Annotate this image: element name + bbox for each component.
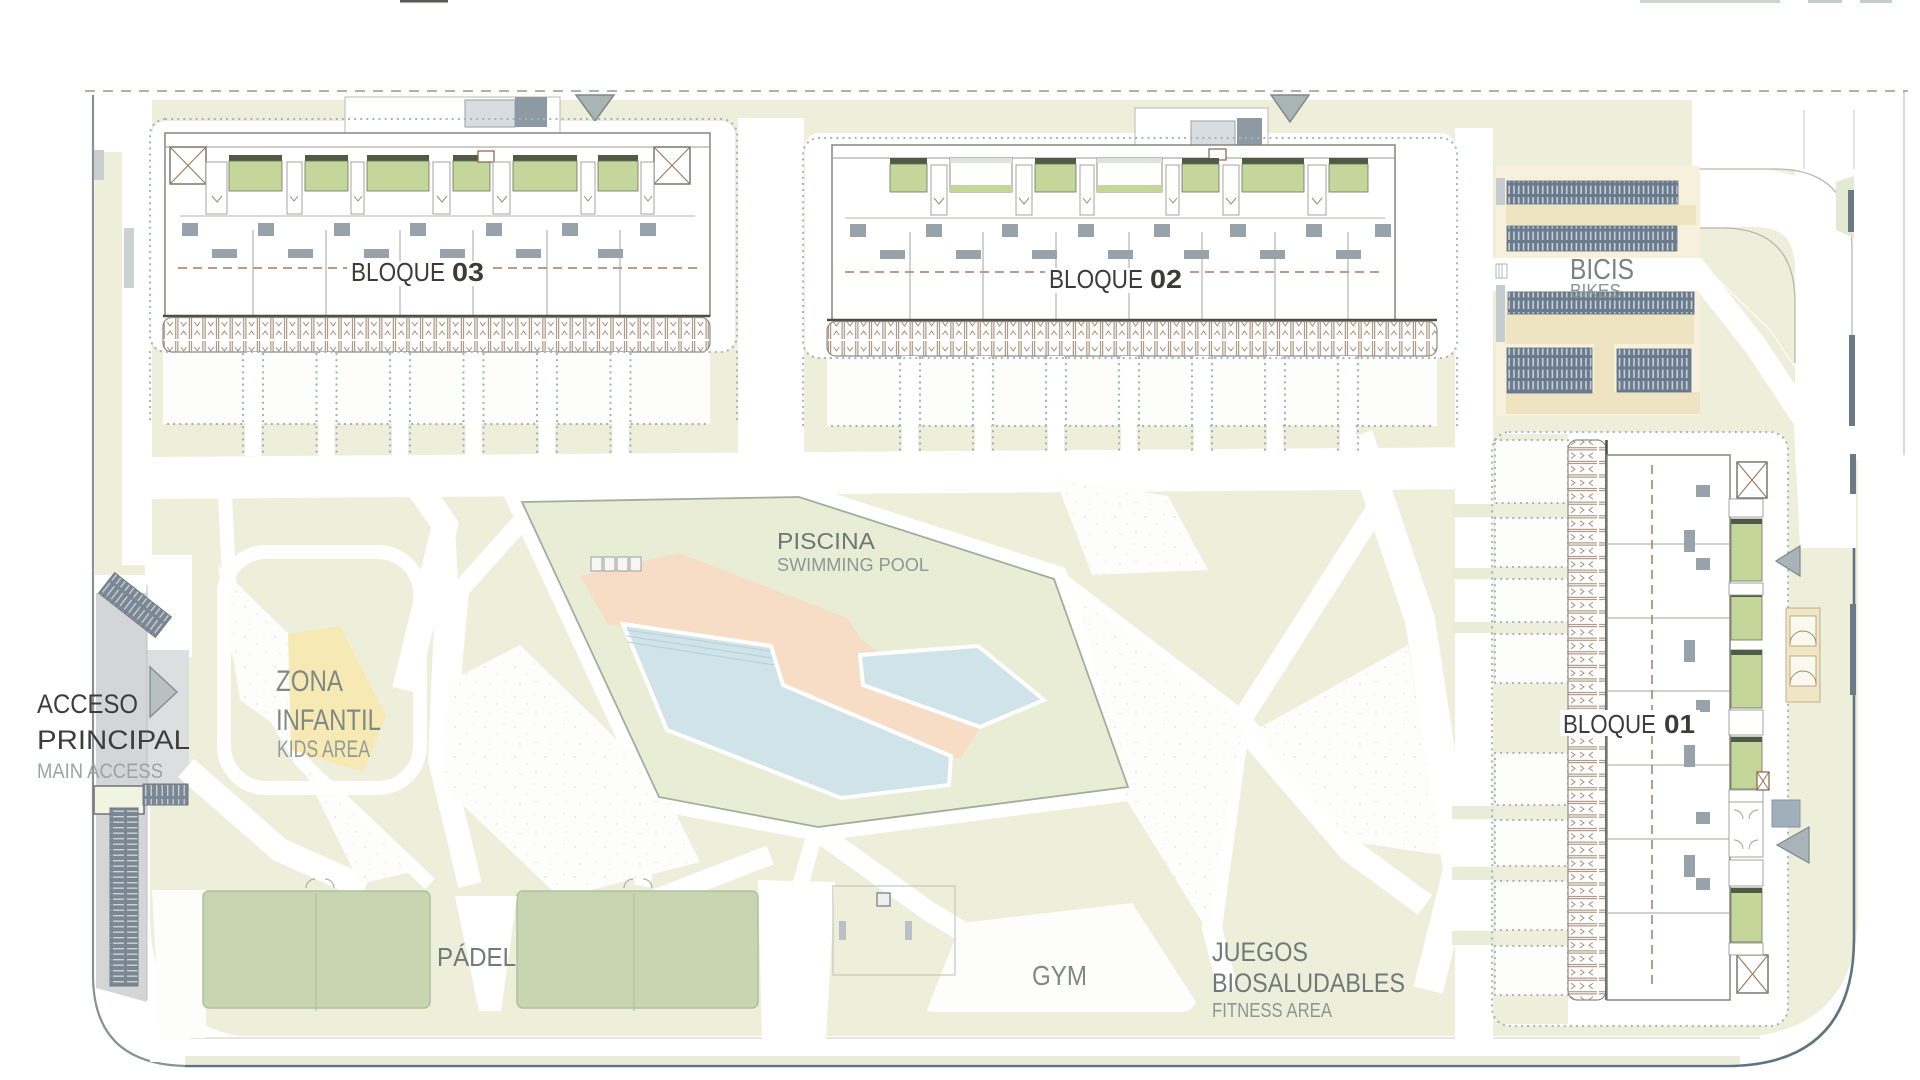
svg-text:BLOQUE: BLOQUE: [351, 259, 445, 287]
svg-text:INFANTIL: INFANTIL: [276, 704, 381, 737]
svg-text:BLOQUE: BLOQUE: [1049, 266, 1143, 294]
svg-text:02: 02: [1150, 266, 1182, 294]
svg-text:MAIN ACCESS: MAIN ACCESS: [37, 760, 163, 783]
svg-text:FITNESS AREA: FITNESS AREA: [1212, 1000, 1333, 1022]
svg-text:KIDS AREA: KIDS AREA: [277, 736, 370, 763]
svg-text:JUEGOS: JUEGOS: [1212, 937, 1308, 967]
svg-text:BLOQUE: BLOQUE: [1563, 709, 1656, 739]
svg-text:ZONA: ZONA: [276, 665, 343, 698]
svg-text:SWIMMING POOL: SWIMMING POOL: [777, 555, 929, 575]
svg-text:ACCESO: ACCESO: [37, 689, 138, 719]
svg-text:PRINCIPAL: PRINCIPAL: [37, 725, 190, 755]
svg-text:GYM: GYM: [1032, 960, 1087, 991]
svg-text:BIKES: BIKES: [1570, 281, 1621, 301]
svg-text:BIOSALUDABLES: BIOSALUDABLES: [1212, 968, 1405, 998]
svg-text:PÁDEL: PÁDEL: [437, 942, 516, 972]
svg-text:01: 01: [1664, 709, 1695, 739]
svg-text:PISCINA: PISCINA: [777, 528, 875, 554]
svg-text:03: 03: [452, 259, 484, 287]
